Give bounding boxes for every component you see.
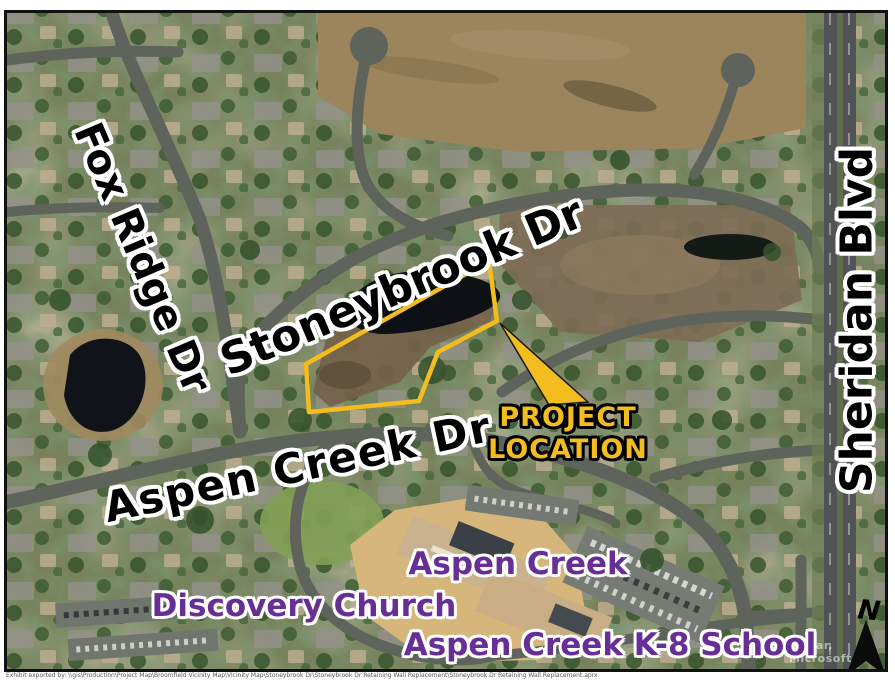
- place-label-aspen-creek: Aspen Creek: [408, 546, 627, 582]
- vicinity-map-exhibit: { "labels": { "fox_ridge": "Fox Ridge Dr…: [0, 0, 895, 680]
- export-path-caption: Exhibit exported by: \\gis\Production\Pr…: [6, 672, 598, 679]
- cul-de-sac: [721, 53, 755, 87]
- project-location-line2: LOCATION: [488, 434, 648, 466]
- place-label-discovery-church: Discovery Church: [152, 588, 457, 624]
- project-location-label: PROJECT LOCATION: [488, 402, 648, 466]
- north-arrow-n-label: N: [856, 594, 882, 627]
- west-pond: [43, 329, 163, 441]
- street-label-sheridan-blvd: Sheridan Blvd: [832, 147, 883, 493]
- place-label-k8-school: Aspen Creek K-8 School: [404, 627, 817, 663]
- cul-de-sac: [350, 27, 388, 65]
- project-location-line1: PROJECT: [488, 402, 648, 434]
- small-pond-east: [684, 234, 776, 260]
